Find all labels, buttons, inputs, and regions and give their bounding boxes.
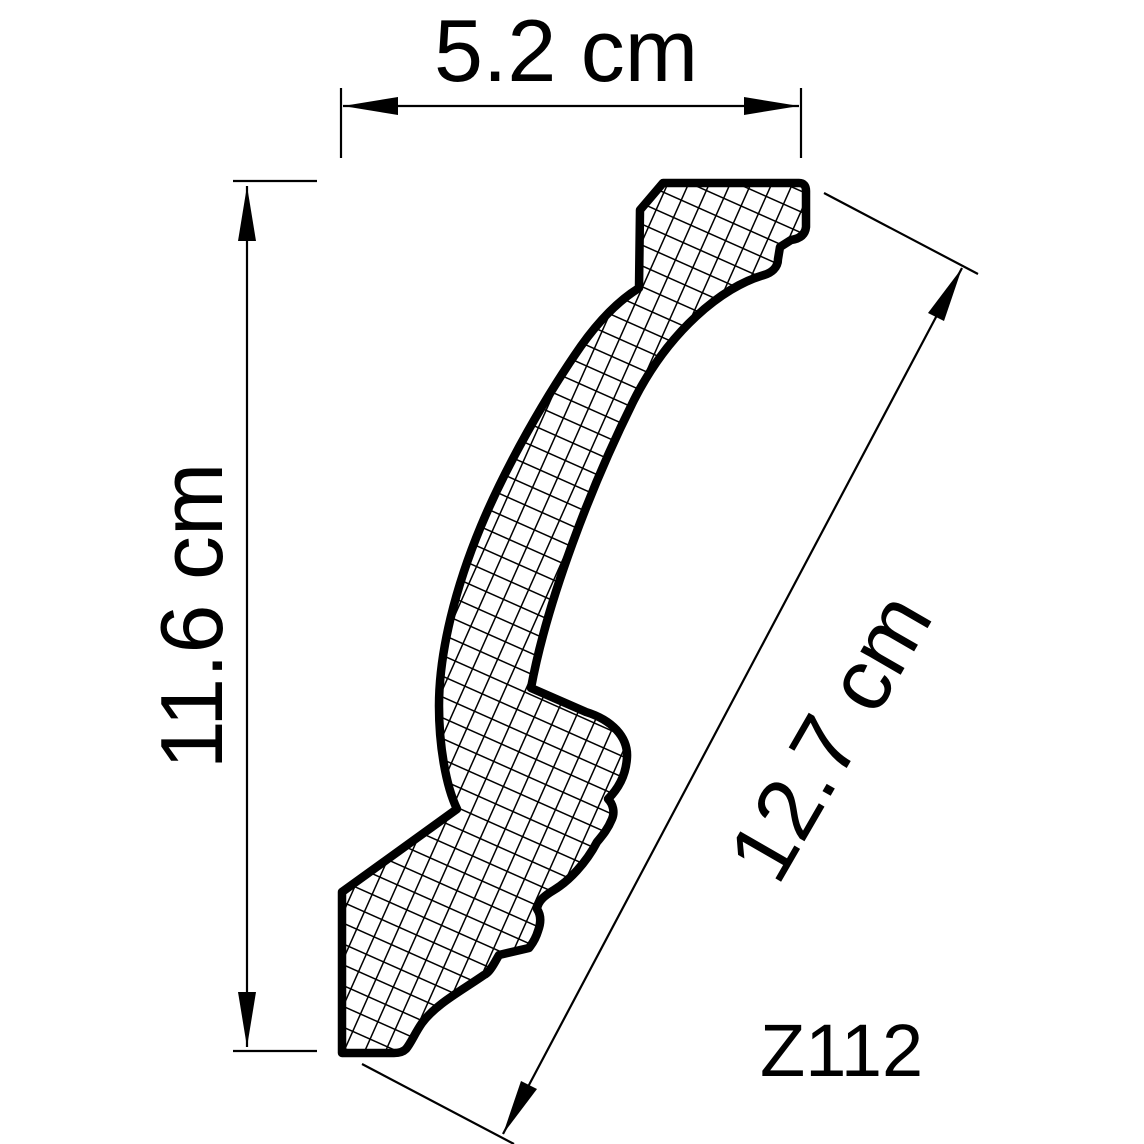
product-code-label: Z112 bbox=[760, 1009, 923, 1092]
height-dimension-label: 11.6 cm bbox=[142, 463, 241, 770]
molding-profile-drawing: 5.2 cm 11.6 cm 12.7 cm Z112 bbox=[0, 0, 1144, 1144]
width-dimension-label: 5.2 cm bbox=[434, 1, 698, 100]
technical-drawing-page: 5.2 cm 11.6 cm 12.7 cm Z112 bbox=[0, 0, 1144, 1144]
